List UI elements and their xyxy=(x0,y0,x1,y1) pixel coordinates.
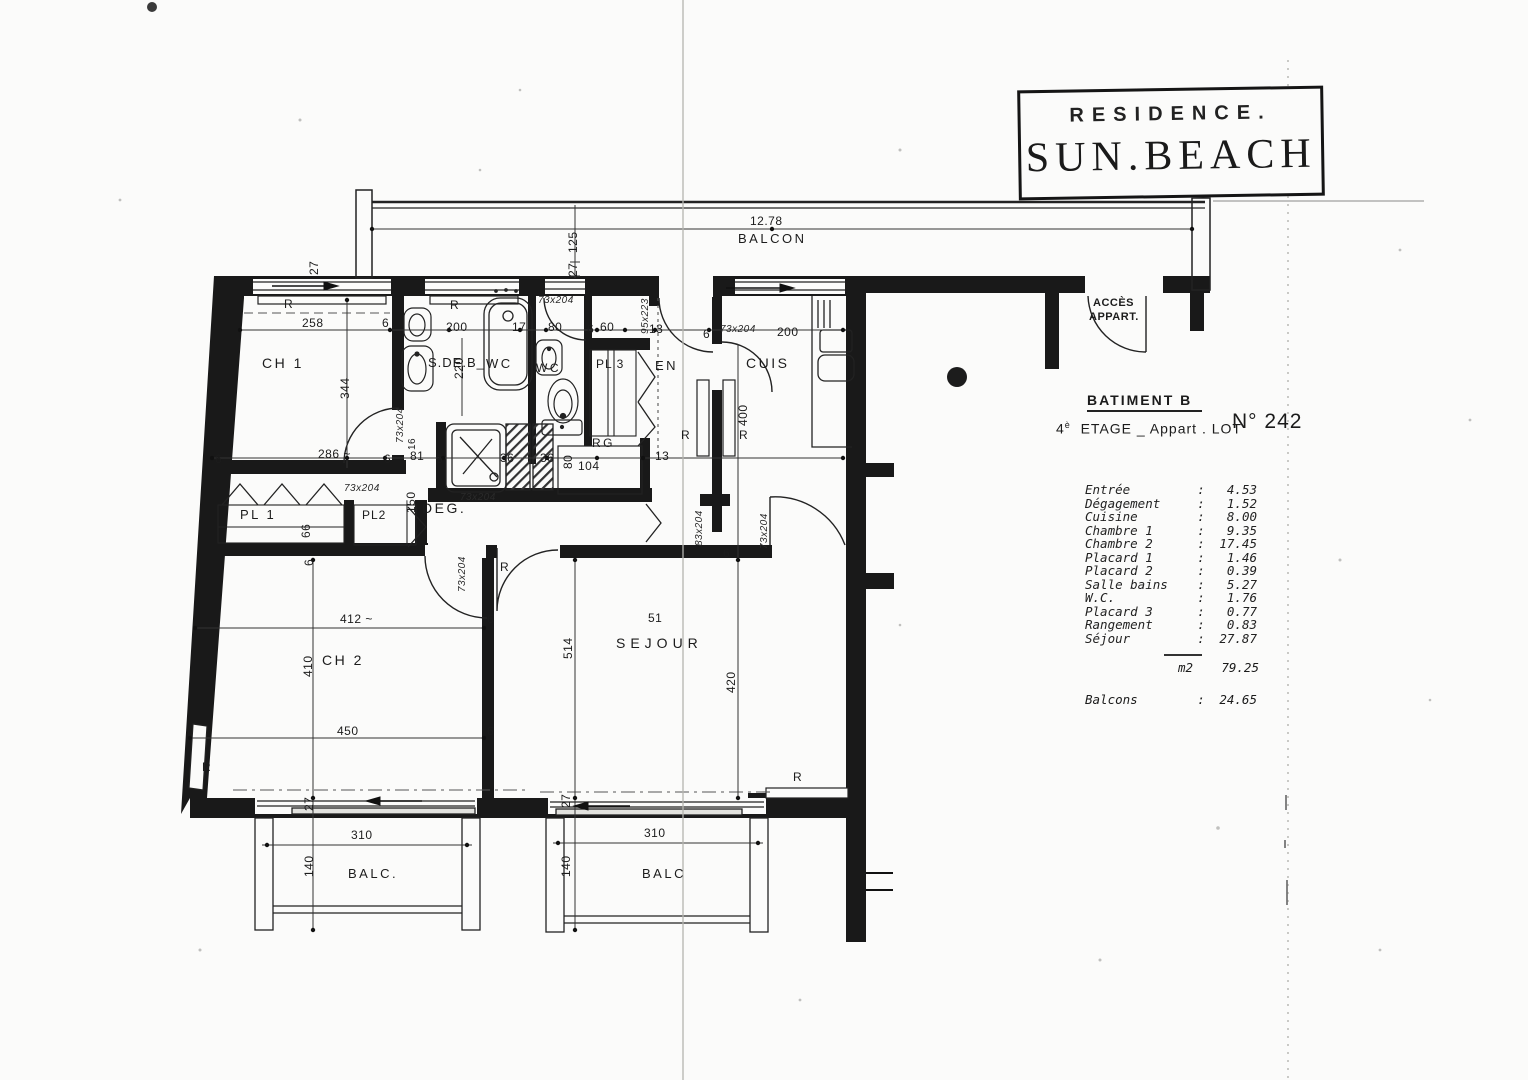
row-name: Placard 2 xyxy=(1085,564,1193,578)
dim-label: 80 xyxy=(548,320,562,334)
row-value: 1.76 xyxy=(1209,591,1257,605)
table-row: Dégagement:1.52 xyxy=(1085,497,1257,511)
room-label-balc2: BALC xyxy=(642,866,686,881)
radiator-label: R xyxy=(681,428,690,442)
dim-label: 36 xyxy=(500,451,514,465)
room-label-ch1: CH 1 xyxy=(262,355,304,371)
room-label-balcon: BALCON xyxy=(738,231,806,246)
row-value: 0.83 xyxy=(1209,618,1257,632)
total-gap xyxy=(1195,660,1211,675)
dim-label: 6 xyxy=(723,546,730,560)
table-row: Placard 3:0.77 xyxy=(1085,605,1257,619)
dim-label: 6 xyxy=(487,724,494,738)
total-row: m279.25 xyxy=(1085,660,1259,675)
row-name: Salle bains xyxy=(1085,578,1193,592)
dim-label: 6 xyxy=(382,316,389,330)
row-colon: : xyxy=(1193,591,1209,605)
radiator-label: R xyxy=(450,298,459,312)
dimension-dots xyxy=(188,227,1194,932)
dim-label: 410 xyxy=(301,655,315,677)
row-value: 1.52 xyxy=(1209,497,1257,511)
room-label-balc1: BALC. xyxy=(348,866,398,881)
row-colon: : xyxy=(1193,564,1209,578)
dim-label: 27 xyxy=(307,261,321,275)
room-label-placard1: PL 1 xyxy=(240,507,276,522)
dim-label: 140 xyxy=(559,855,573,877)
door-size-label: 83x204 xyxy=(694,510,705,546)
row-name: Dégagement xyxy=(1085,497,1193,511)
table-row: Rangement:0.83 xyxy=(1085,618,1257,632)
batiment-label: BATIMENT B xyxy=(1087,392,1202,412)
radiator-label: R xyxy=(202,760,211,774)
room-label-sejour: SEJOUR xyxy=(616,635,703,651)
top-balcony-rail xyxy=(356,190,1424,290)
floor-number: 4 xyxy=(1056,421,1065,437)
total-value: 79.25 xyxy=(1211,660,1259,675)
row-name: W.C. xyxy=(1085,591,1193,605)
dim-label: 81 xyxy=(410,449,424,463)
room-label-placard2: PL2 xyxy=(362,508,386,522)
row-value: 1.46 xyxy=(1209,551,1257,565)
balcons-colon: : xyxy=(1193,692,1209,707)
dim-label: 220 xyxy=(452,357,466,379)
row-value: 8.00 xyxy=(1209,510,1257,524)
dim-label: 150 xyxy=(404,491,418,513)
dim-label: 450 xyxy=(337,724,359,738)
table-row: Entrée:4.53 xyxy=(1085,483,1257,497)
dim-label: 13 xyxy=(649,322,663,336)
dim-label: 51 xyxy=(648,611,662,625)
total-unit: m2 xyxy=(1085,660,1195,675)
dim-label: 27 xyxy=(566,263,580,277)
row-colon: : xyxy=(1193,605,1209,619)
dim-label: 400 xyxy=(736,404,750,426)
dim-label: 258 xyxy=(302,316,324,330)
sink-icon xyxy=(402,308,433,391)
dim-label: 6 xyxy=(487,612,494,626)
walls xyxy=(181,276,1210,942)
dim-label: 344 xyxy=(338,377,352,399)
dim-label: 27 xyxy=(559,794,573,808)
dim-label: 12.78 xyxy=(750,214,783,228)
row-colon: : xyxy=(1193,510,1209,524)
balcons-row: Balcons:24.65 xyxy=(1085,692,1257,707)
row-name: Chambre 1 xyxy=(1085,524,1193,538)
dim-label: 6 xyxy=(587,322,594,336)
dim-label: 13 xyxy=(655,449,669,463)
balcons-label: Balcons xyxy=(1085,692,1193,707)
floor-ordinal: è xyxy=(1065,420,1071,430)
row-value: 4.53 xyxy=(1209,483,1257,497)
table-row: Chambre 1:9.35 xyxy=(1085,524,1257,538)
door-size-label: 73x204 xyxy=(538,295,574,306)
room-label-wc: WC xyxy=(536,361,561,375)
radiator-label: R xyxy=(739,428,748,442)
row-name: Placard 1 xyxy=(1085,551,1193,565)
dimension-lines xyxy=(190,205,1192,932)
dim-label: 6 xyxy=(703,327,710,341)
dim-label: 286 ~ xyxy=(318,447,351,461)
toilet-icon xyxy=(536,340,582,435)
dim-label: 412 ~ xyxy=(340,612,373,626)
row-name: Cuisine xyxy=(1085,510,1193,524)
table-row: Placard 1:1.46 xyxy=(1085,551,1257,565)
row-colon: : xyxy=(1193,618,1209,632)
residence-label: RESIDENCE. xyxy=(1020,101,1320,129)
lot-number: N° 242 xyxy=(1232,410,1302,434)
dim-label: 200 xyxy=(446,320,468,334)
door-size-label: 73x204 xyxy=(759,513,770,549)
acces-appart-label-1: ACCÈS xyxy=(1093,297,1134,309)
dim-label: 17 xyxy=(512,320,526,334)
row-colon: : xyxy=(1193,483,1209,497)
room-area-table: Entrée:4.53 Dégagement:1.52 Cuisine:8.00… xyxy=(1085,483,1257,645)
floor-line: 4è ETAGE _ Appart . LOT xyxy=(1056,420,1242,437)
room-label-placard3: PL 3 xyxy=(596,357,624,371)
dim-label: 125 xyxy=(566,231,580,253)
balconies xyxy=(255,801,768,932)
dim-label: 60 xyxy=(600,320,614,334)
radiator-label: R xyxy=(793,770,802,784)
row-colon: : xyxy=(1193,497,1209,511)
row-value: 27.87 xyxy=(1209,632,1257,646)
dim-label: 66 xyxy=(299,524,313,538)
balcons-value: 24.65 xyxy=(1209,692,1257,707)
dim-label: 6 xyxy=(215,452,222,466)
total-separator xyxy=(1164,654,1202,656)
row-name: Rangement xyxy=(1085,618,1193,632)
row-name: Séjour xyxy=(1085,632,1193,646)
row-value: 0.77 xyxy=(1209,605,1257,619)
acces-appart-label-2: APPART. xyxy=(1089,311,1139,323)
residence-name: SUN.BEACH xyxy=(1021,130,1322,183)
table-row: Salle bains:5.27 xyxy=(1085,578,1257,592)
radiator-label: R xyxy=(284,297,293,311)
room-label-rangement: RG xyxy=(592,436,615,450)
door-size-label: 73x204 xyxy=(457,556,468,592)
row-name: Chambre 2 xyxy=(1085,537,1193,551)
table-row: Chambre 2:17.45 xyxy=(1085,537,1257,551)
dim-label: 27 xyxy=(302,797,316,811)
dim-label: 200 xyxy=(777,325,799,339)
row-colon: : xyxy=(1193,537,1209,551)
dim-label: 80 xyxy=(561,455,575,469)
title-block: RESIDENCE. SUN.BEACH xyxy=(1017,86,1325,201)
row-colon: : xyxy=(1193,632,1209,646)
row-colon: : xyxy=(1193,524,1209,538)
door-size-label: 73x204 xyxy=(720,324,756,335)
dim-label: 310 xyxy=(644,826,666,840)
dim-label: 104 xyxy=(578,459,600,473)
room-label-wc-tub: WC xyxy=(486,356,513,371)
row-value: 0.39 xyxy=(1209,564,1257,578)
door-size-label: 73x204 xyxy=(395,407,406,443)
row-name: Entrée xyxy=(1085,483,1193,497)
room-label-entree: EN xyxy=(655,358,678,373)
room-label-cuisine: CUIS xyxy=(746,355,789,371)
dim-label: 36 xyxy=(540,451,554,465)
door-size-label: 73x204 xyxy=(460,492,496,503)
dim-label: 310 xyxy=(351,828,373,842)
room-label-ch2: CH 2 xyxy=(322,652,364,668)
dim-label: 6 xyxy=(384,452,391,466)
scanned-floor-plan-page: RESIDENCE. SUN.BEACH BATIMENT B 4è ETAGE… xyxy=(0,0,1528,1080)
row-name: Placard 3 xyxy=(1085,605,1193,619)
dim-label: 6 xyxy=(436,452,443,466)
table-row: Cuisine:8.00 xyxy=(1085,510,1257,524)
table-row: Séjour:27.87 xyxy=(1085,632,1257,646)
row-value: 5.27 xyxy=(1209,578,1257,592)
dim-label: 140 xyxy=(302,855,316,877)
row-value: 9.35 xyxy=(1209,524,1257,538)
door-size-label: 73x204 xyxy=(344,483,380,494)
dim-label: 420 xyxy=(724,671,738,693)
radiator-label: R xyxy=(500,560,509,574)
row-colon: : xyxy=(1193,578,1209,592)
dim-label: 514 xyxy=(561,637,575,659)
door-size-label: 95x223 xyxy=(640,298,651,334)
table-row: W.C.:1.76 xyxy=(1085,591,1257,605)
row-value: 17.45 xyxy=(1209,537,1257,551)
floor-text: ETAGE _ Appart . LOT xyxy=(1081,421,1242,437)
dim-label: 6 xyxy=(302,559,316,566)
row-colon: : xyxy=(1193,551,1209,565)
table-row: Placard 2:0.39 xyxy=(1085,564,1257,578)
